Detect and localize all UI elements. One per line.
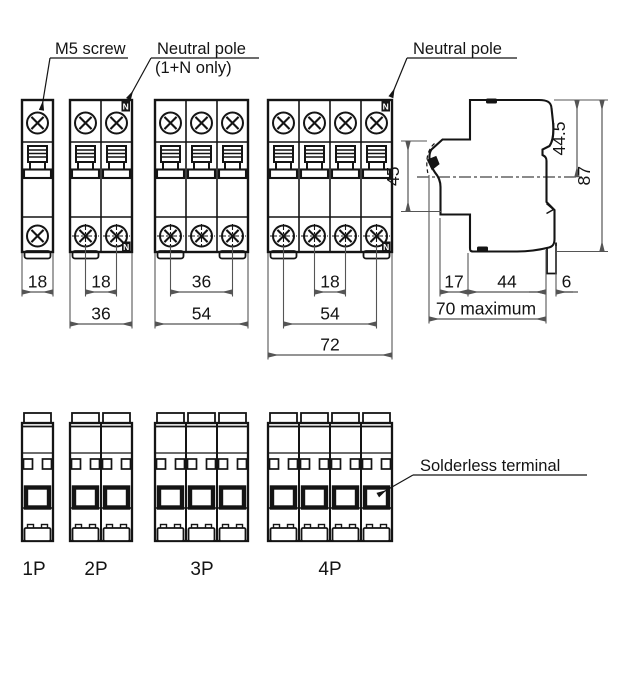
pole-count-label-4p: 4P xyxy=(318,559,341,580)
vent-slot xyxy=(219,459,228,469)
breaker-body-rear xyxy=(22,423,53,541)
front-view-2p: NN1836 xyxy=(70,100,132,329)
top-tab xyxy=(24,413,51,423)
dim-3p-36: 36 xyxy=(192,272,211,292)
front-view-1p: 18 xyxy=(22,100,53,297)
mounting-foot xyxy=(73,528,99,541)
diagram-canvas: 18NN18363654NN1854721P2P3P4P4544.5871744… xyxy=(0,0,635,681)
vent-slot xyxy=(103,459,112,469)
vent-slot xyxy=(382,459,391,469)
toggle-handle xyxy=(270,146,297,178)
vent-slot xyxy=(301,459,310,469)
mounting-foot xyxy=(158,528,184,541)
toggle-handle xyxy=(24,146,51,178)
dim-87: 87 xyxy=(574,166,594,185)
dim-6: 6 xyxy=(562,272,572,292)
bottom-view-3p: 3P xyxy=(155,413,248,580)
bottom-view-1p: 1P xyxy=(22,413,53,580)
solderless-terminal-opening xyxy=(221,488,244,508)
vent-slot xyxy=(176,459,185,469)
vent-slot xyxy=(363,459,372,469)
neutral-badge-letter: N xyxy=(383,242,389,252)
mounting-foot xyxy=(302,528,328,541)
dim-4p-18: 18 xyxy=(320,272,339,292)
dim-3p-54: 54 xyxy=(192,304,212,324)
solderless-terminal-opening xyxy=(272,488,295,508)
m5-screw-leader xyxy=(42,58,51,110)
dim-4p-54: 54 xyxy=(320,304,340,324)
dim-1p-18: 18 xyxy=(28,272,47,292)
vent-slot xyxy=(24,459,33,469)
toggle-handle xyxy=(188,146,215,178)
solderless-terminal-opening xyxy=(26,488,49,508)
solderless-terminal-opening xyxy=(334,488,357,508)
dim-4p-72: 72 xyxy=(320,335,339,355)
vent-slot xyxy=(270,459,279,469)
neutral-pole-right-leader xyxy=(391,58,407,97)
top-tab-side xyxy=(486,99,497,104)
neutral-badge-letter: N xyxy=(123,242,129,252)
pole-count-label-2p: 2P xyxy=(84,559,107,580)
vent-slot xyxy=(72,459,81,469)
dim-2p-18: 18 xyxy=(91,272,110,292)
vent-slot xyxy=(122,459,131,469)
solderless-terminal-opening xyxy=(190,488,213,508)
top-tab xyxy=(157,413,184,423)
toggle-handle xyxy=(157,146,184,178)
toggle-handle xyxy=(301,146,328,178)
top-tab xyxy=(301,413,328,423)
front-view-4p: NN185472 xyxy=(268,100,392,360)
solderless-terminal-opening xyxy=(105,488,128,508)
top-tab xyxy=(219,413,246,423)
dim-44: 44 xyxy=(497,272,517,292)
solderless-terminal-opening xyxy=(303,488,326,508)
bottom-view-4p: 4P xyxy=(268,413,392,580)
dim-44-5: 44.5 xyxy=(549,121,569,155)
pole-count-label-1p: 1P xyxy=(22,559,45,580)
top-tab xyxy=(103,413,130,423)
solderless-terminal-opening xyxy=(365,488,388,508)
vent-slot xyxy=(43,459,52,469)
top-tab xyxy=(270,413,297,423)
toggle-handle xyxy=(332,146,359,178)
mounting-foot xyxy=(271,528,297,541)
vent-slot xyxy=(188,459,197,469)
neutral-pole-top-sub-label: (1+N only) xyxy=(155,59,232,77)
neutral-pole-right-label: Neutral pole xyxy=(413,40,502,58)
dim-70-maximum: 70 maximum xyxy=(436,299,536,319)
vent-slot xyxy=(157,459,166,469)
bottom-tab-side xyxy=(477,247,488,252)
breaker-dimension-diagram: 18NN18363654NN1854721P2P3P4P4544.5871744… xyxy=(0,0,635,681)
pole-count-label-3p: 3P xyxy=(190,559,213,580)
side-view: 4544.5871744670 maximum xyxy=(383,99,608,324)
mounting-foot xyxy=(104,528,130,541)
dim-45: 45 xyxy=(383,167,403,186)
vent-slot xyxy=(320,459,329,469)
toggle-handle xyxy=(103,146,130,178)
neutral-pole-top-label: Neutral pole xyxy=(157,40,246,58)
mounting-foot xyxy=(333,528,359,541)
generated-drawing: 18NN18363654NN1854721P2P3P4P4544.5871744… xyxy=(22,99,608,581)
top-tab xyxy=(188,413,215,423)
mounting-foot xyxy=(364,528,390,541)
vent-slot xyxy=(332,459,341,469)
mounting-foot xyxy=(25,528,51,541)
top-tab xyxy=(72,413,99,423)
vent-slot xyxy=(351,459,360,469)
solderless-terminal-opening xyxy=(74,488,97,508)
vent-slot xyxy=(207,459,216,469)
breaker-body-rear xyxy=(155,423,248,541)
neutral-badge-letter: N xyxy=(123,102,129,112)
side-profile-outline xyxy=(429,100,554,252)
bottom-view-2p: 2P xyxy=(70,413,132,580)
toggle-handle xyxy=(72,146,99,178)
solderless-terminal-label: Solderless terminal xyxy=(420,457,560,475)
mounting-foot xyxy=(220,528,246,541)
dim-17: 17 xyxy=(444,272,463,292)
solderless-terminal-opening xyxy=(159,488,182,508)
toggle-handle xyxy=(219,146,246,178)
vent-slot xyxy=(238,459,247,469)
dim-2p-36: 36 xyxy=(91,304,110,324)
top-tab xyxy=(363,413,390,423)
front-view-3p: 3654 xyxy=(155,100,248,329)
neutral-pole-top-leader xyxy=(129,58,152,99)
top-tab xyxy=(332,413,359,423)
m5-screw-label: M5 screw xyxy=(55,40,126,58)
neutral-badge-letter: N xyxy=(383,102,389,112)
vent-slot xyxy=(289,459,298,469)
mounting-foot xyxy=(189,528,215,541)
vent-slot xyxy=(91,459,100,469)
